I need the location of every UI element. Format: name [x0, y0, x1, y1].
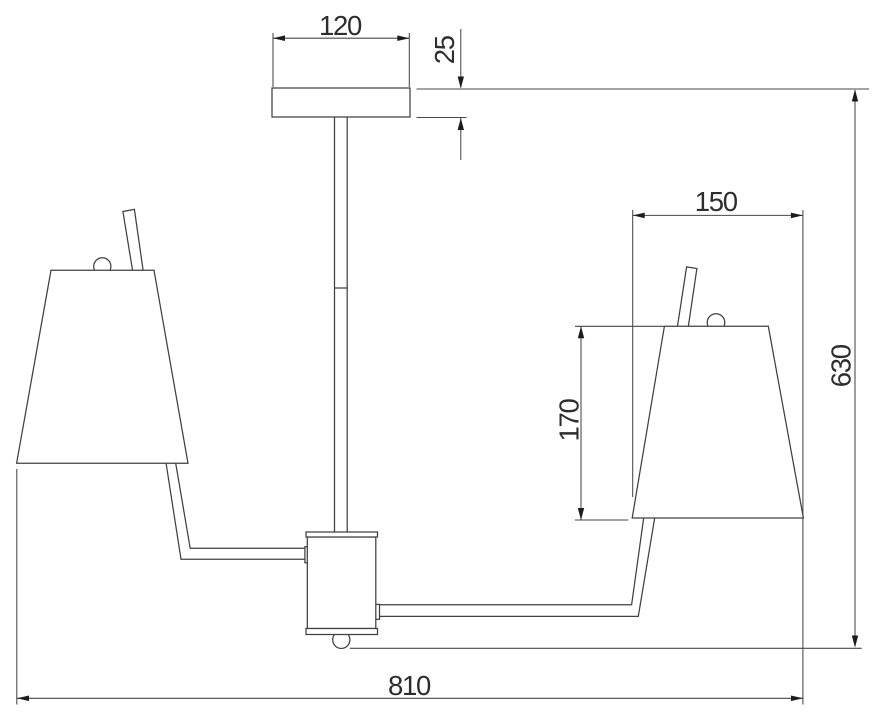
svg-text:170: 170 [553, 399, 584, 442]
svg-text:150: 150 [695, 186, 738, 217]
svg-text:120: 120 [319, 10, 362, 41]
svg-text:810: 810 [388, 670, 431, 701]
svg-text:630: 630 [826, 344, 857, 387]
svg-text:25: 25 [429, 35, 460, 64]
